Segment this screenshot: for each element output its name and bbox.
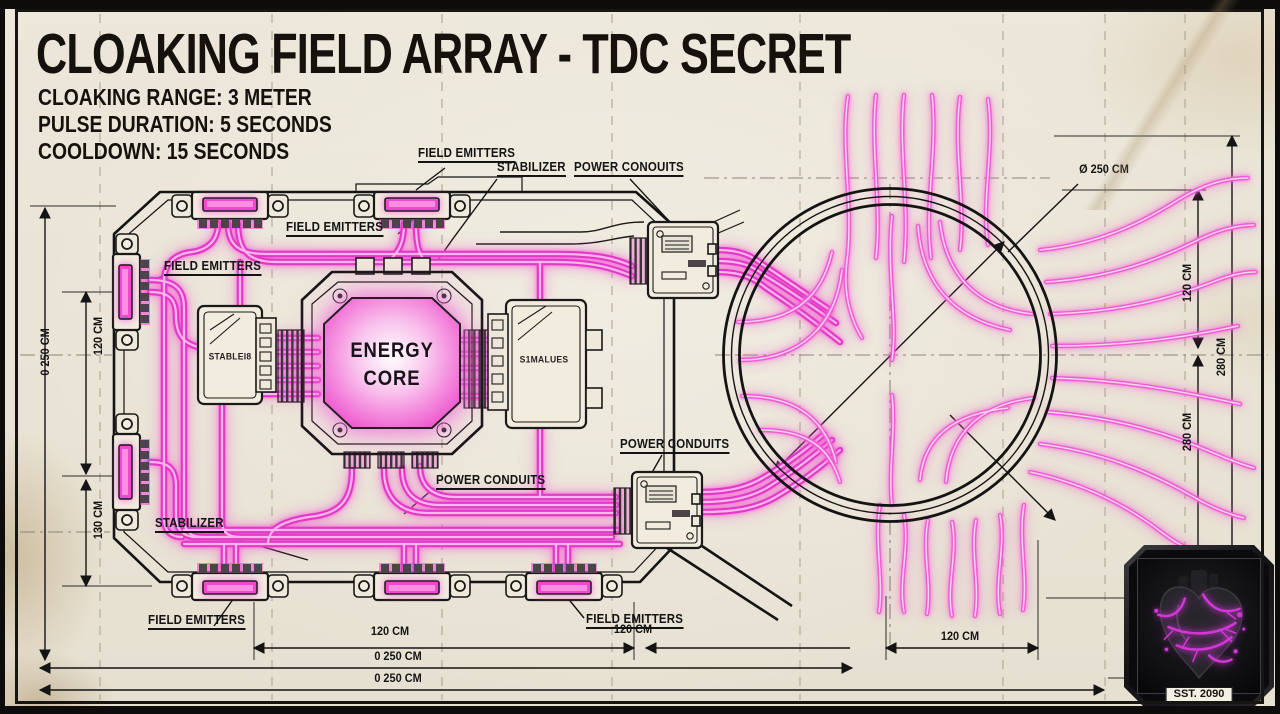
stabilizer-right-text: S1MALUES: [520, 355, 569, 366]
page-title: CLOAKING FIELD ARRAY - TDC SECRET: [36, 22, 850, 86]
junction-box-bottom: [632, 472, 702, 548]
junction-box-top: [648, 222, 718, 298]
dim-right-upper: 120 CM: [1182, 264, 1194, 302]
label-power-conduits-top: POWER CONOUITS: [574, 160, 684, 177]
label-field-emitters-upper-mid: FIELD EMITTERS: [286, 220, 383, 237]
label-power-conduits-center: POWER CONDUITS: [436, 473, 545, 490]
spec-cooldown: COOLDOWN: 15 SECONDS: [38, 138, 289, 165]
label-stabilizer-left: STABILIZER: [155, 516, 224, 533]
dim-right-outer: 280 CM: [1216, 338, 1228, 376]
label-stabilizer-top: STABILIZER: [497, 160, 566, 177]
badge-panel: [1137, 558, 1261, 694]
page-edge-top: [0, 0, 1280, 9]
page-edge-bottom: [0, 706, 1280, 714]
dim-left-upper: 120 CM: [93, 317, 105, 355]
dim-left-lower: 130 CM: [93, 501, 105, 539]
energy-core-label-2: CORE: [364, 367, 421, 391]
label-power-conduits-right: POWER CONDUITS: [620, 437, 729, 454]
dim-left-outer: 0 250 CM: [40, 328, 52, 375]
dim-bottom-total-upper: 0 250 CM: [374, 651, 421, 663]
badge-caption: SST. 2090: [1166, 687, 1233, 702]
dim-right-lower: 280 CM: [1182, 413, 1194, 451]
stabilizer-left-text: STABLEI8: [209, 352, 252, 363]
dim-field-width: 120 CM: [941, 631, 979, 643]
blueprint-page: CLOAKING FIELD ARRAY - TDC SECRET CLOAKI…: [0, 0, 1280, 714]
page-edge-left: [0, 0, 5, 714]
dim-circle-diameter: Ø 250 CM: [1079, 164, 1129, 176]
energy-core-label-1: ENERGY: [350, 339, 433, 363]
dim-bottom-left-span: 120 CM: [371, 626, 409, 638]
label-field-emitters-left: FIELD EMITTERS: [164, 259, 261, 276]
dim-bottom-total-lower: 0 250 CM: [374, 673, 421, 685]
faction-badge: SST. 2090: [1124, 545, 1274, 707]
dim-bottom-right-span: 120 CM: [614, 624, 652, 636]
spec-cloaking-range: CLOAKING RANGE: 3 METER: [38, 84, 312, 111]
page-edge-right: [1275, 0, 1280, 714]
spec-pulse-duration: PULSE DURATION: 5 SECONDS: [38, 111, 332, 138]
heart-emblem: [1138, 559, 1260, 691]
label-field-emitters-bottom-left: FIELD EMITTERS: [148, 613, 245, 630]
